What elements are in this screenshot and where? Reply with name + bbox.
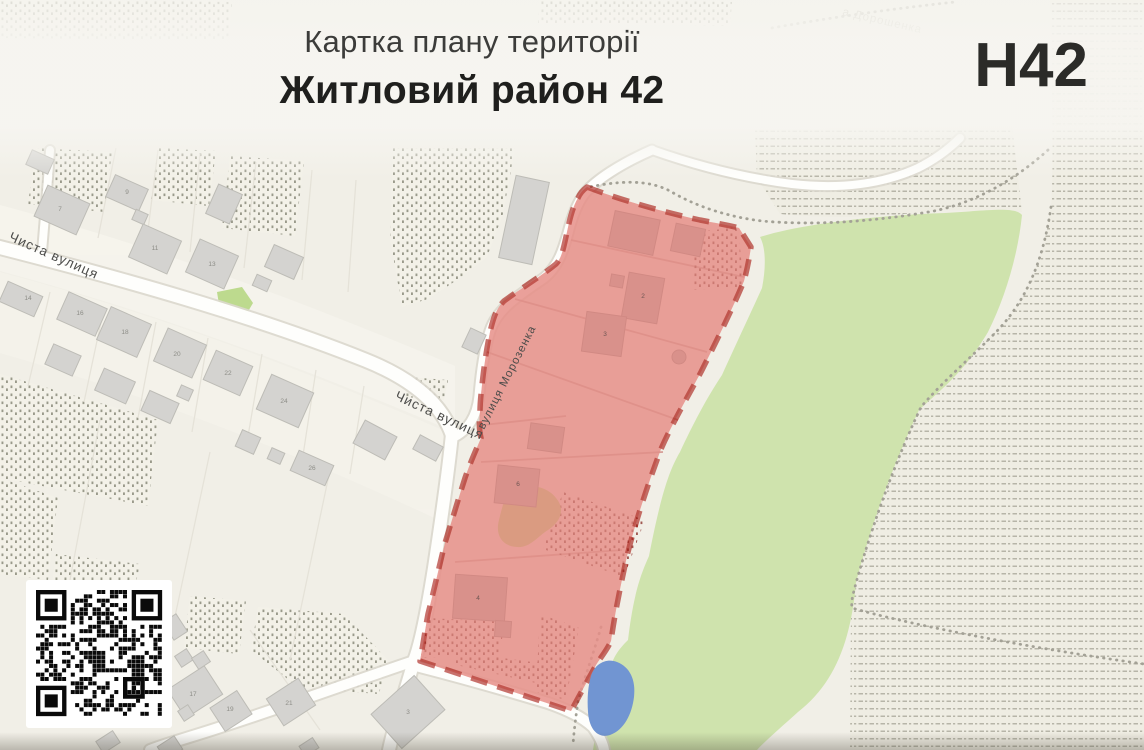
house-number: 9 (125, 189, 129, 196)
house-number: 3 (406, 709, 410, 716)
plan-card: Чиста вулиця Чиста вулиця вулиця Морозен… (0, 0, 1144, 750)
zone-parcel-number: 6 (516, 481, 520, 488)
qr-code (26, 580, 172, 728)
house-number: 22 (224, 370, 232, 377)
house-number: 13 (208, 261, 216, 268)
house-number: 26 (308, 465, 316, 472)
zone-parcel-number: 4 (476, 595, 480, 602)
house-number: 17 (189, 691, 197, 698)
house-number: 18 (121, 329, 129, 336)
house-number: 19 (226, 706, 234, 713)
house-number: 24 (280, 398, 288, 405)
house-number: 21 (285, 700, 293, 707)
house-number: 14 (24, 295, 32, 302)
house-number: 7 (58, 206, 62, 213)
bottom-shadow (0, 732, 1144, 750)
house-number: 20 (173, 351, 181, 358)
zone-parcel-number: 3 (603, 331, 607, 338)
house-number: 16 (76, 310, 84, 317)
zone-parcel-number: 2 (641, 293, 645, 300)
house-number: 11 (152, 245, 159, 252)
territory-map: Чиста вулиця Чиста вулиця вулиця Морозен… (0, 0, 1144, 750)
